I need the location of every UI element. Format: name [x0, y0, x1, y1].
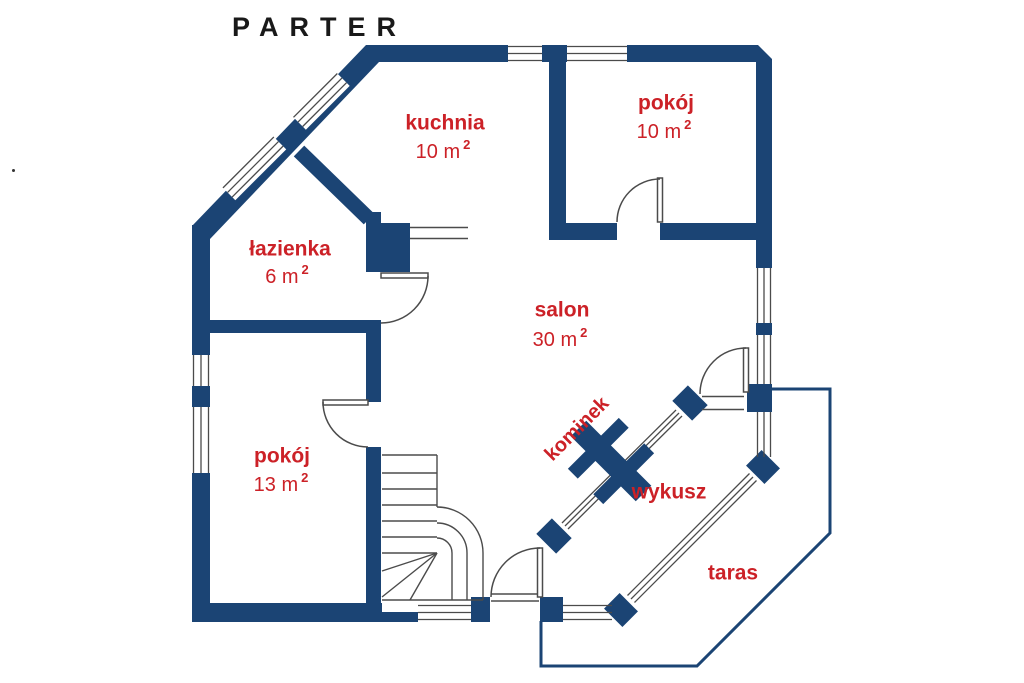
door-arc-lazienka: [381, 273, 428, 323]
door-arc-terrace-left: [491, 548, 543, 601]
walls: [192, 45, 780, 627]
page-title: PARTER: [232, 11, 407, 43]
area-superscript: 2: [684, 117, 691, 132]
floorplan-drawing: [0, 0, 1024, 683]
room-area-pokoj-dolny: 13 m2: [254, 475, 309, 495]
window-icon-top-kuchnia: [508, 45, 542, 62]
wall-bottom-jamb2: [540, 597, 563, 622]
wall-bottom-jamb1: [471, 597, 490, 622]
room-label-salon: salon: [535, 300, 590, 321]
wall-pokoj-salon-right: [660, 223, 757, 240]
window-icon-right-1: [758, 268, 771, 323]
wall-right-upper: [756, 45, 772, 268]
window-icon-top-pokoj: [567, 45, 627, 62]
wall-bay-endblock: [604, 593, 638, 627]
wall-bottom-left: [192, 603, 382, 622]
room-area-pokoj-gorny: 10 m2: [637, 122, 692, 142]
wall-lazienka-diagonal: [299, 151, 369, 219]
window-icon-left-1: [194, 355, 209, 386]
wall-lazienka-bottom: [192, 320, 381, 333]
room-label-pokoj-dolny: pokój: [254, 446, 310, 467]
door-arc-pokoj-dolny: [323, 400, 368, 447]
wall-left-mid: [192, 386, 210, 407]
window-icon-left-2: [194, 407, 209, 473]
wall-hall-stub: [381, 223, 410, 272]
wall-left-lower: [192, 473, 210, 622]
room-area-salon: 30 m2: [533, 330, 588, 350]
area-superscript: 2: [580, 325, 587, 340]
wall-bottom-understairs: [382, 612, 418, 622]
wall-pokoj13-right: [366, 447, 381, 612]
room-label-pokoj-gorny: pokój: [638, 93, 694, 114]
window-icon-bottom-2: [563, 606, 612, 620]
area-value: 10 m: [416, 141, 460, 163]
stray-dot: [12, 169, 15, 172]
room-label-lazienka: łazienka: [249, 239, 331, 260]
staircase: [382, 455, 483, 600]
area-value: 6 m: [265, 266, 298, 288]
area-value: 30 m: [533, 329, 577, 351]
room-label-kuchnia: kuchnia: [405, 113, 484, 134]
area-value: 13 m: [254, 474, 298, 496]
feature-label-taras: taras: [708, 563, 758, 584]
area-superscript: 2: [301, 470, 308, 485]
wall-lazienka-right-top: [366, 212, 381, 272]
room-area-kuchnia: 10 m2: [416, 142, 471, 162]
area-value: 10 m: [637, 121, 681, 143]
area-superscript: 2: [302, 262, 309, 277]
feature-label-wykusz: wykusz: [632, 482, 707, 503]
wall-right-mid: [756, 323, 772, 335]
door-arc-terrace-right: [700, 348, 749, 410]
bay-inner-block-upper: [672, 385, 707, 420]
wall-pokoj-salon-left: [549, 223, 617, 240]
wall-top: [366, 45, 756, 62]
room-area-lazienka: 6 m2: [265, 267, 309, 287]
wall-divider-kuchnia-pokoj: [549, 62, 566, 240]
window-icon-bottom-1: [418, 606, 471, 620]
door-arc-pokoj-gorny: [617, 178, 663, 222]
floorplan-page: PARTER kuchnia 10 m2 pokój 10 m2 łazienk…: [0, 0, 1024, 683]
window-icon-right-2: [758, 335, 771, 384]
area-superscript: 2: [463, 137, 470, 152]
wall-left-upper: [192, 225, 210, 355]
wall-right-lower: [747, 384, 772, 412]
passage-kuchnia-threshold: [410, 228, 468, 239]
window-icon-bay-vertical: [758, 412, 771, 457]
